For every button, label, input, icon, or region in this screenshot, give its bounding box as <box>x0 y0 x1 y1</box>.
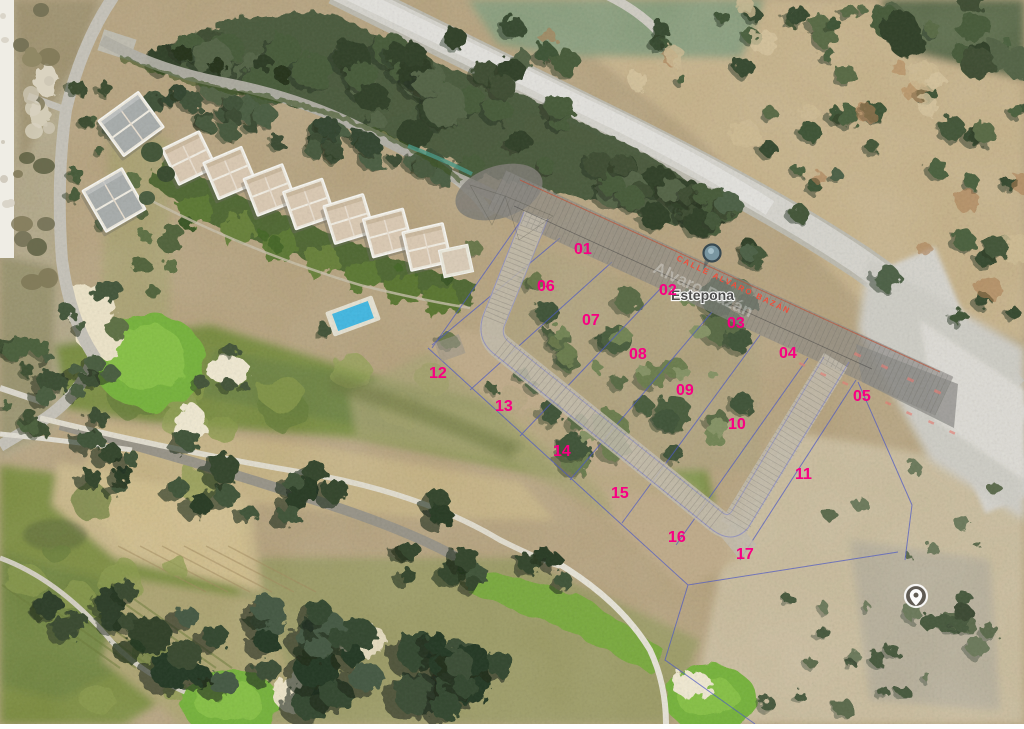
svg-text:17: 17 <box>736 546 754 563</box>
svg-text:13: 13 <box>495 398 513 415</box>
svg-text:16: 16 <box>668 529 686 546</box>
svg-text:12: 12 <box>429 365 447 382</box>
svg-text:08: 08 <box>629 346 647 363</box>
svg-text:15: 15 <box>611 485 629 502</box>
svg-text:03: 03 <box>727 315 745 332</box>
svg-text:02: 02 <box>659 282 677 299</box>
svg-text:Estepona: Estepona <box>671 287 734 303</box>
svg-text:06: 06 <box>537 278 555 295</box>
svg-text:05: 05 <box>853 388 871 405</box>
svg-text:01: 01 <box>574 241 592 258</box>
svg-text:09: 09 <box>676 382 694 399</box>
svg-text:07: 07 <box>582 312 600 329</box>
svg-text:11: 11 <box>795 466 812 483</box>
svg-text:04: 04 <box>779 345 797 362</box>
svg-text:10: 10 <box>728 416 746 433</box>
svg-text:14: 14 <box>553 443 571 460</box>
